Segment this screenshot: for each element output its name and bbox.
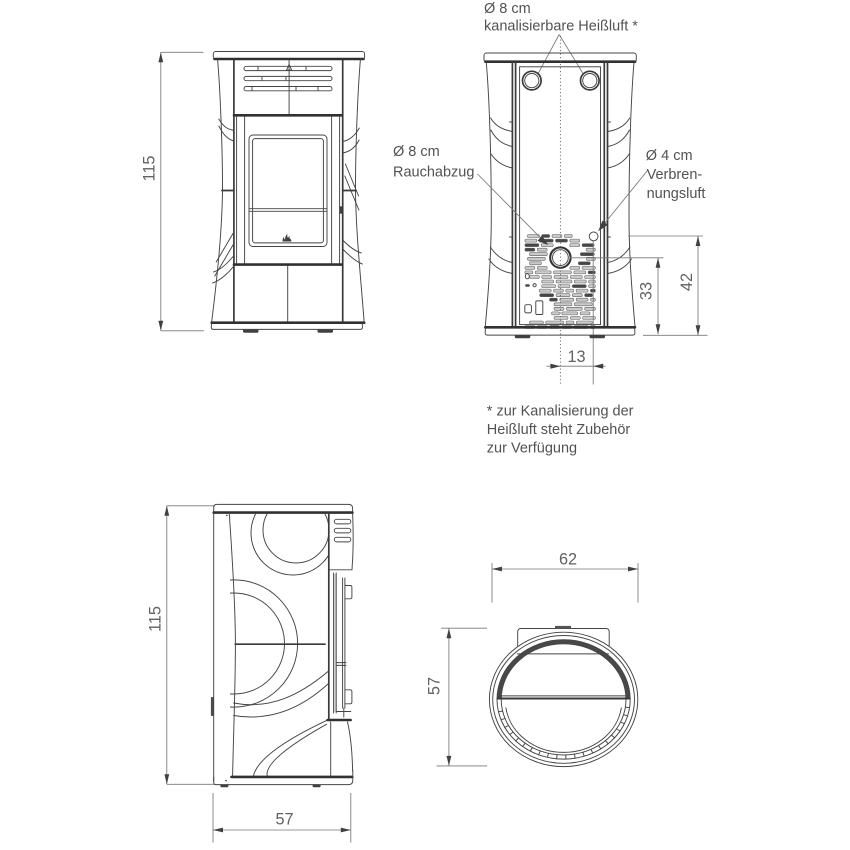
svg-text:115: 115	[140, 156, 158, 182]
svg-text:42: 42	[678, 273, 696, 291]
svg-text:Ø 4 cm: Ø 4 cm	[646, 148, 693, 164]
svg-text:Rauchabzug: Rauchabzug	[393, 164, 474, 180]
svg-text:57: 57	[426, 677, 444, 695]
svg-text:Verbren-: Verbren-	[647, 167, 703, 183]
svg-text:Heißluft steht Zubehör: Heißluft steht Zubehör	[487, 422, 631, 438]
svg-text:13: 13	[567, 348, 585, 366]
svg-text:zur Verfügung: zur Verfügung	[487, 440, 577, 456]
svg-text:nungsluft: nungsluft	[647, 186, 706, 202]
svg-text:57: 57	[275, 810, 293, 828]
svg-text:kanalisierbare Heißluft *: kanalisierbare Heißluft *	[484, 19, 638, 35]
svg-text:115: 115	[146, 606, 164, 632]
svg-text:62: 62	[559, 551, 577, 569]
svg-text:* zur Kanalisierung der: * zur Kanalisierung der	[487, 404, 634, 420]
svg-text:33: 33	[638, 282, 656, 300]
svg-text:Ø 8 cm: Ø 8 cm	[484, 1, 531, 17]
svg-text:Ø 8 cm: Ø 8 cm	[393, 144, 440, 160]
